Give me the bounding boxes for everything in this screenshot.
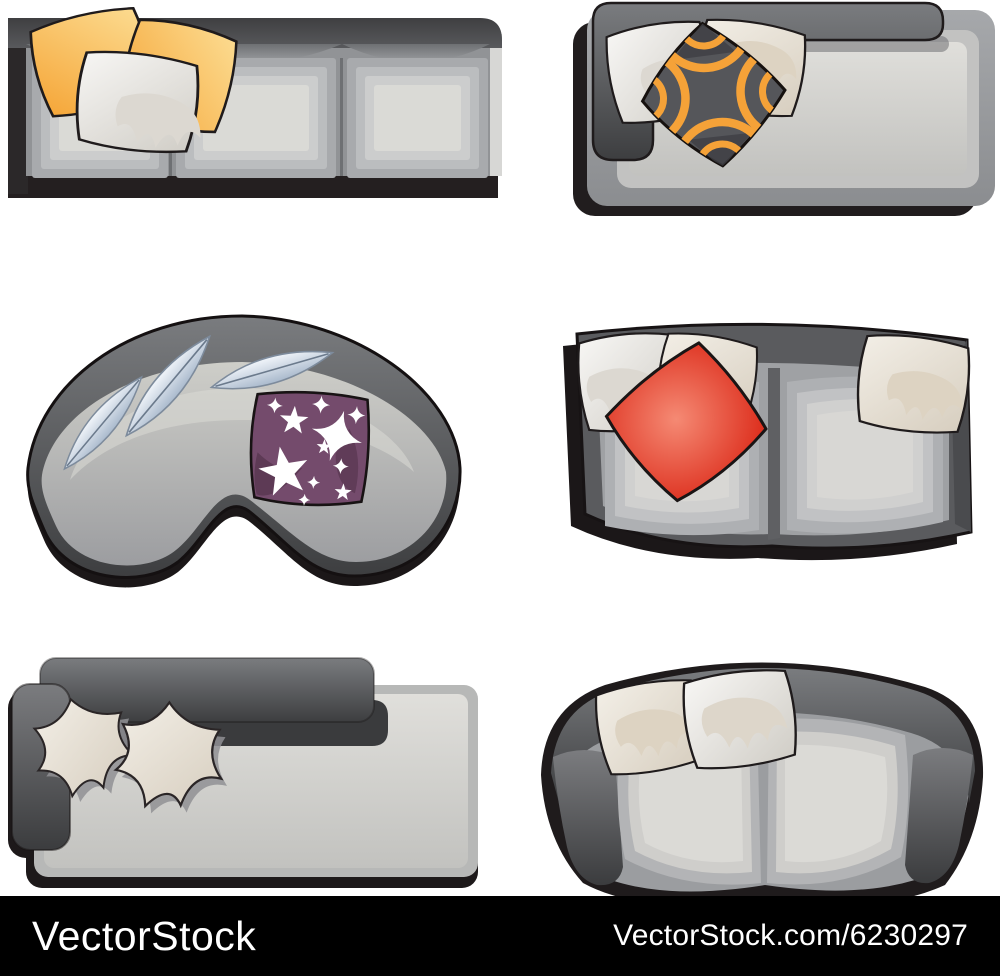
watermark-bar: VectorStock VectorStock.com/6230297 (0, 896, 1000, 976)
three-seat-straight-sofa (0, 0, 505, 230)
cream-pillow (681, 666, 800, 771)
kidney-curved-sofa (10, 300, 480, 600)
white-pillow (71, 46, 211, 159)
corner-back-daybed-sofa (565, 0, 1000, 225)
curved-two-seat-sofa (535, 300, 995, 570)
low-back-daybed-sofa (0, 648, 485, 898)
vectorstock-logo: VectorStock (32, 913, 256, 960)
vector-illustration-sheet: VectorStock VectorStock.com/6230297 (0, 0, 1000, 976)
cream-pillow (852, 330, 974, 439)
vectorstock-url: VectorStock.com/6230297 (613, 919, 968, 953)
right-armrest (905, 748, 973, 883)
rounded-two-seat-sofa (525, 645, 1000, 910)
purple-star-pillow (247, 388, 372, 509)
